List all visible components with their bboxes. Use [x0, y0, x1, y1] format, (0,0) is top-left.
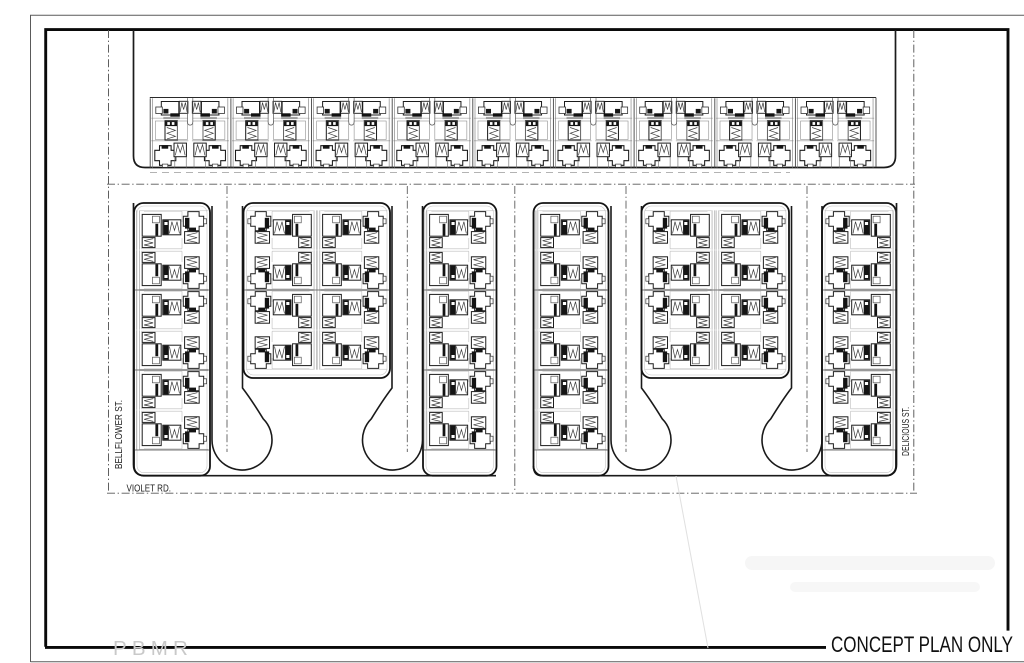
svg-text:BELLFLOWER ST.: BELLFLOWER ST. [114, 400, 125, 469]
svg-text:DELICIOUS ST.: DELICIOUS ST. [901, 407, 912, 456]
svg-text:CONCEPT PLAN ONLY: CONCEPT PLAN ONLY [831, 632, 1013, 657]
svg-text:PBMR: PBMR [113, 638, 193, 660]
svg-text:VIOLET RD.: VIOLET RD. [127, 484, 172, 495]
